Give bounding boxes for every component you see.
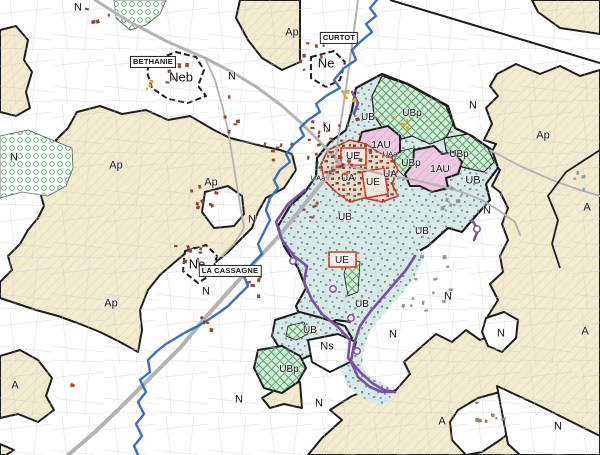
zoning-map [0, 0, 600, 455]
map-canvas[interactable]: NApNebNNeNNApNApApUBUBp1AUUAaUEUBpUBp1AU… [0, 0, 600, 455]
parcel-mesh [0, 0, 600, 455]
